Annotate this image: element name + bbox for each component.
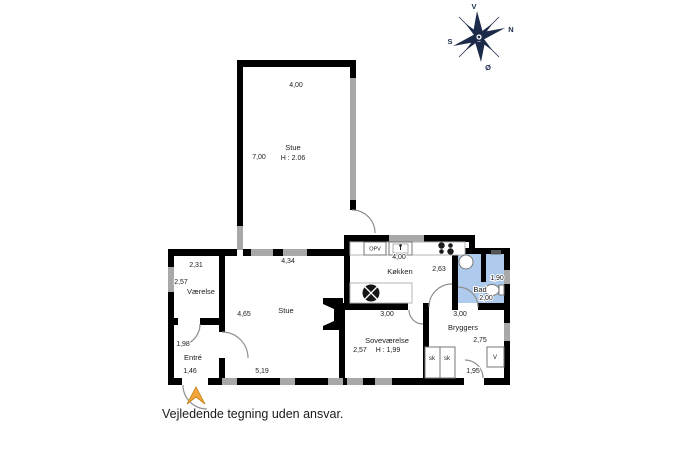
room-label-stue-top: Stue	[285, 143, 300, 152]
ceiling-sovevaerelse: H : 1,99	[376, 347, 401, 354]
dim-sovevaerelse-left: 2,57	[353, 347, 367, 354]
dim-bryggers-top: 3,00	[453, 311, 467, 318]
entrance-arrow-icon	[187, 387, 205, 404]
utility-fixtures	[425, 347, 504, 378]
dim-vaerelse-left: 2,57	[174, 279, 188, 286]
room-label-bad: Bad	[473, 285, 486, 294]
lower-counter	[350, 283, 412, 303]
room-label-entre: Entré	[184, 353, 202, 362]
dim-entre-left: 1,98	[176, 341, 190, 348]
dim-stue-top-depth: 7,00	[252, 154, 266, 161]
closet-a-label: sk	[429, 356, 436, 362]
disclaimer-text: Vejledende tegning uden ansvar.	[162, 407, 343, 421]
compass-label-v: V	[471, 2, 476, 11]
dim-koekken-top: 4,00	[392, 254, 406, 261]
round-sink-icon	[363, 285, 380, 302]
dim-bad-right: 1,90	[490, 275, 504, 282]
dim-vaerelse-top: 2,31	[189, 262, 203, 269]
closet-a-box	[425, 347, 440, 378]
room-label-bryggers: Bryggers	[448, 323, 478, 332]
dim-stue-top-width: 4,00	[289, 82, 303, 89]
dim-stue-bottom: 5,19	[255, 368, 269, 375]
dim-sovevaerelse-top: 3,00	[380, 311, 394, 318]
compass-label-n: N	[508, 25, 513, 34]
compass-point-down	[475, 42, 485, 62]
room-label-koekken: Køkken	[387, 267, 412, 276]
floor-plan-drawing: 4,00 7,00 Stue H : 2.06 2,31 2,57 Værels…	[0, 0, 687, 457]
dim-bryggers-door: 1,95	[466, 368, 480, 375]
shower-icon	[491, 250, 501, 255]
room-label-vaerelse: Værelse	[187, 287, 215, 296]
closet-b-label: sk	[444, 356, 451, 362]
floor-plan-page: 4,00 7,00 Stue H : 2.06 2,31 2,57 Værels…	[0, 0, 687, 457]
washer-label: V	[493, 355, 497, 361]
toilet-tank	[499, 285, 504, 295]
dim-entre-bottom: 1,46	[183, 368, 197, 375]
dim-bad-bottom: 2,00	[479, 295, 493, 302]
compass-point-up	[473, 11, 483, 33]
dim-stue-left: 4,65	[237, 311, 251, 318]
compass-label-o: Ø	[485, 63, 491, 72]
dim-koekken-right: 2,63	[432, 266, 446, 273]
room-label-sovevaerelse: Soveværelse	[365, 336, 409, 345]
dim-stue-top-edge: 4,34	[281, 258, 295, 265]
bath-sink-icon	[459, 255, 473, 269]
compass-label-s: S	[447, 37, 452, 46]
dishwasher-label: OPV	[369, 247, 381, 253]
closet-b-box	[440, 347, 455, 378]
ceiling-stue-top: H : 2.06	[281, 155, 306, 162]
compass-rose: V N S Ø	[447, 2, 513, 72]
room-label-stue: Stue	[278, 306, 293, 315]
toilet-icon	[485, 285, 499, 296]
dim-bryggers-right: 2,75	[473, 337, 487, 344]
walls	[168, 60, 510, 385]
